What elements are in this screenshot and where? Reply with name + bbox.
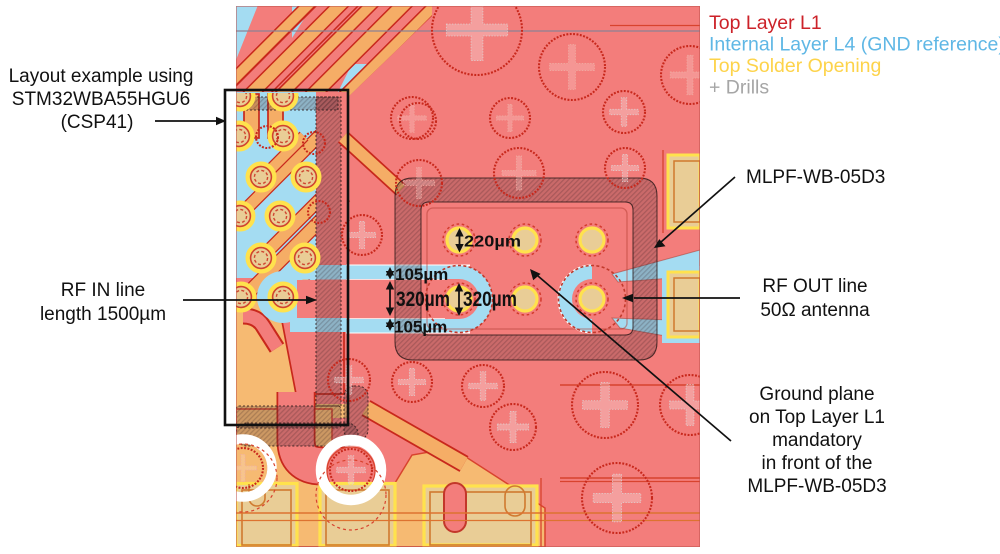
svg-text:Internal Layer L4 (GND referen: Internal Layer L4 (GND reference) bbox=[709, 34, 1000, 56]
svg-text:RF IN line: RF IN line bbox=[61, 280, 145, 301]
svg-text:320µm: 320µm bbox=[396, 288, 450, 311]
svg-text:220µm: 220µm bbox=[464, 234, 521, 251]
svg-text:in front of the: in front of the bbox=[762, 453, 873, 474]
svg-text:320µm: 320µm bbox=[463, 288, 517, 311]
svg-text:(CSP41): (CSP41) bbox=[61, 112, 134, 133]
svg-text:105µm: 105µm bbox=[394, 318, 447, 337]
svg-text:STM32WBA55HGU6: STM32WBA55HGU6 bbox=[12, 89, 190, 110]
svg-text:MLPF-WB-05D3: MLPF-WB-05D3 bbox=[747, 476, 886, 497]
svg-text:50Ω antenna: 50Ω antenna bbox=[760, 300, 870, 321]
svg-text:length 1500µm: length 1500µm bbox=[40, 304, 166, 325]
svg-text:Top Layer L1: Top Layer L1 bbox=[709, 12, 822, 34]
svg-text:Layout example using: Layout example using bbox=[9, 66, 194, 87]
svg-text:105µm: 105µm bbox=[395, 265, 448, 284]
svg-text:+ Drills: + Drills bbox=[709, 77, 769, 99]
svg-text:MLPF-WB-05D3: MLPF-WB-05D3 bbox=[746, 167, 885, 188]
svg-text:mandatory: mandatory bbox=[772, 430, 862, 451]
svg-text:RF OUT line: RF OUT line bbox=[762, 276, 867, 297]
svg-text:Ground plane: Ground plane bbox=[759, 384, 874, 405]
svg-text:on Top Layer L1: on Top Layer L1 bbox=[749, 407, 885, 428]
svg-text:Top Solder Opening: Top Solder Opening bbox=[709, 55, 881, 77]
